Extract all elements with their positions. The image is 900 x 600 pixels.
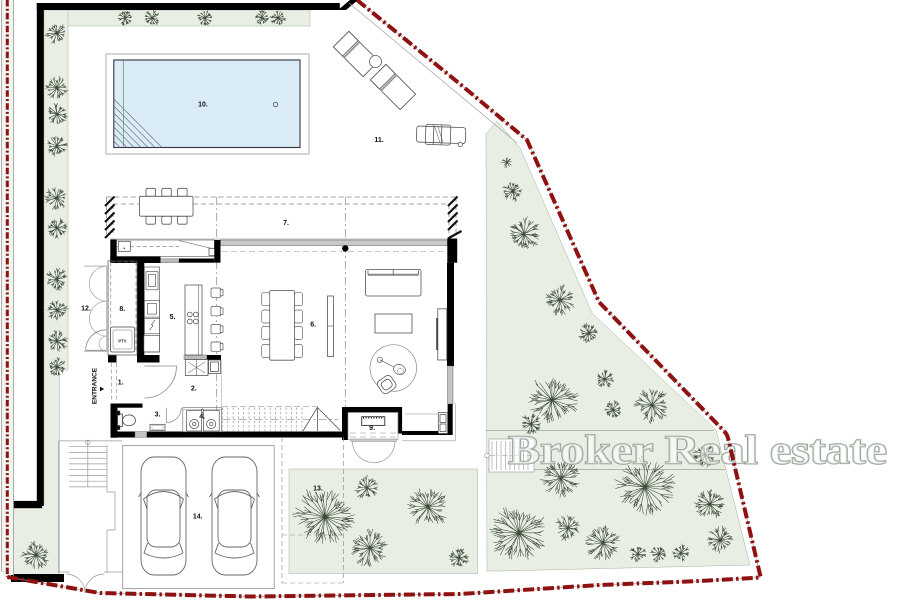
svg-text:7.: 7.: [283, 220, 289, 227]
svg-text:PTV: PTV: [118, 339, 126, 344]
svg-text:2.: 2.: [191, 386, 197, 393]
svg-text:9.: 9.: [369, 425, 375, 432]
svg-text:6.: 6.: [310, 321, 316, 328]
svg-text:13.: 13.: [313, 486, 323, 493]
svg-text:ENTRANCE: ENTRANCE: [92, 367, 99, 404]
svg-text:1.: 1.: [118, 380, 124, 387]
svg-text:8.: 8.: [119, 306, 125, 313]
svg-text:5.: 5.: [170, 314, 176, 321]
svg-text:Broker Real estate: Broker Real estate: [508, 427, 887, 473]
svg-text:11.: 11.: [374, 137, 383, 144]
svg-text:3.: 3.: [155, 412, 161, 419]
svg-text:10.: 10.: [198, 102, 208, 109]
svg-text:4.: 4.: [199, 414, 205, 421]
svg-text:14.: 14.: [193, 514, 203, 521]
svg-text:12.: 12.: [81, 306, 91, 313]
